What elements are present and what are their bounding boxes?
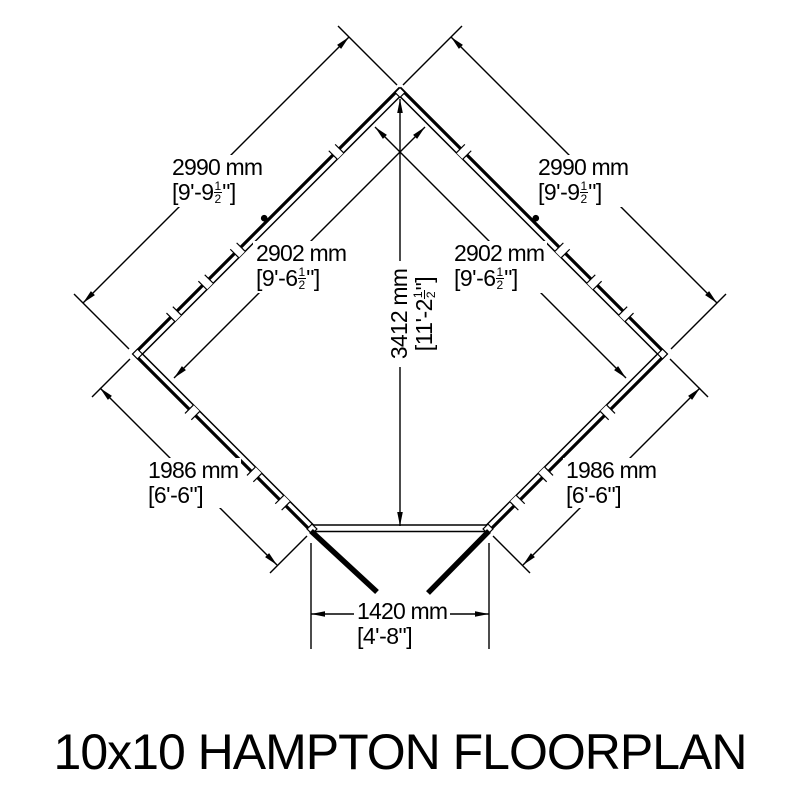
dim-metric: 1986 mm <box>148 458 238 483</box>
dim-imperial: [9'-612"] <box>256 266 346 293</box>
dim-imperial: [6'-6"] <box>566 483 656 508</box>
dim-metric: 2902 mm <box>454 241 544 266</box>
dim-metric: 2990 mm <box>172 155 262 180</box>
dim-label-1986-left: 1986 mm [6'-6"] <box>145 458 241 508</box>
dim-label-2990-left: 2990 mm [9'-912"] <box>169 155 265 207</box>
fraction: 12 <box>580 180 589 206</box>
fraction: 12 <box>412 290 438 299</box>
dim-metric: 2990 mm <box>538 155 628 180</box>
dim-label-2902-right: 2902 mm [9'-612"] <box>451 241 547 293</box>
dim-label-3412-height: 3412 mm [11'-212"] <box>387 261 439 367</box>
floorplan-drawing <box>0 0 800 800</box>
dim-label-1986-right: 1986 mm [6'-6"] <box>563 458 659 508</box>
page-title: 10x10 HAMPTON FLOORPLAN <box>0 725 800 780</box>
dim-label-2902-left: 2902 mm [9'-612"] <box>253 241 349 293</box>
door-leaves <box>311 531 489 593</box>
dim-imperial: [11'-212"] <box>412 264 439 364</box>
dim-metric: 1986 mm <box>566 458 656 483</box>
dim-imperial: [4'-8"] <box>357 624 447 649</box>
dim-metric: 2902 mm <box>256 241 346 266</box>
fraction: 12 <box>214 180 223 206</box>
dim-label-1420-door: 1420 mm [4'-8"] <box>354 599 450 649</box>
dim-imperial: [9'-612"] <box>454 266 544 293</box>
fraction: 12 <box>298 266 307 292</box>
dim-metric: 1420 mm <box>357 599 447 624</box>
dim-imperial: [9'-912"] <box>538 180 628 207</box>
fraction: 12 <box>496 266 505 292</box>
dim-imperial: [9'-912"] <box>172 180 262 207</box>
dim-metric: 3412 mm <box>387 264 412 364</box>
dim-label-2990-right: 2990 mm [9'-912"] <box>535 155 631 207</box>
dim-imperial: [6'-6"] <box>148 483 238 508</box>
floorplan-page: 2990 mm [9'-912"] 2990 mm [9'-912"] 2902… <box>0 0 800 800</box>
